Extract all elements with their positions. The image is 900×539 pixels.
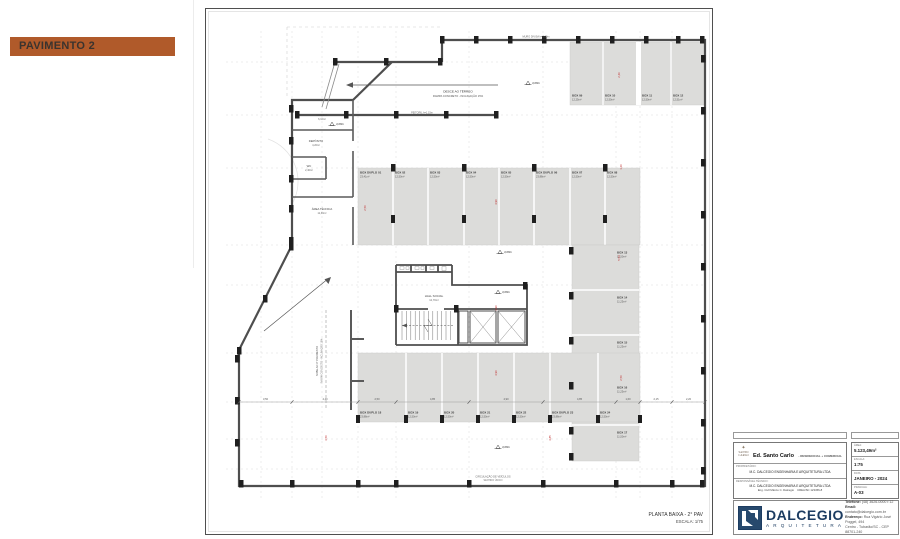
column bbox=[384, 58, 389, 66]
dimension-value: 4,85 bbox=[577, 397, 583, 401]
room-name: DEPÓSITO bbox=[309, 138, 324, 143]
ramp-note-line2: RAMPA CONCRETO - INCLINAÇÃO 15% bbox=[433, 93, 484, 98]
column bbox=[356, 480, 361, 488]
dimension-value: 4,90 bbox=[503, 397, 509, 401]
area-label: ÁREA: bbox=[854, 444, 896, 447]
column bbox=[700, 480, 705, 488]
column bbox=[670, 480, 675, 488]
parking-stall-name: BOX DUPLO 01 bbox=[360, 171, 382, 175]
column bbox=[237, 347, 242, 355]
parking-stall-area: 12,50m² bbox=[430, 174, 440, 178]
phone-label: Telefone: bbox=[845, 500, 861, 504]
parking-stall-name: BOX DUPLO 06 bbox=[536, 171, 558, 175]
column bbox=[239, 480, 244, 488]
red-dimension: 4,85 bbox=[548, 435, 552, 441]
column bbox=[235, 439, 240, 447]
parking-stall-area: 12,50m² bbox=[572, 174, 582, 178]
floor-label-banner: PAVIMENTO 2 bbox=[10, 37, 175, 56]
responsible-crea: CREA/SC 123456-8 bbox=[797, 488, 822, 492]
column bbox=[444, 111, 449, 119]
area-value: 5.123,49m² bbox=[854, 448, 896, 453]
column bbox=[603, 215, 607, 223]
column bbox=[440, 36, 445, 44]
parking-stall-name: BOX 14 bbox=[617, 296, 628, 300]
red-dimension: 1,20 bbox=[619, 164, 623, 170]
room-area: 11,30m² bbox=[318, 212, 327, 215]
column bbox=[235, 397, 240, 405]
column bbox=[701, 419, 706, 427]
column bbox=[701, 211, 706, 219]
dimension-value: 2,20 bbox=[686, 397, 692, 401]
wc-fixtures bbox=[400, 267, 446, 271]
column bbox=[394, 480, 399, 488]
column bbox=[391, 215, 395, 223]
column bbox=[474, 36, 479, 44]
dimension-value: 2,50 bbox=[374, 397, 380, 401]
stairs bbox=[402, 311, 454, 340]
parking-stall-area: 12,50m² bbox=[466, 174, 476, 178]
floor-plan-drawing: BOX DUPLO 0123,41m²BOX 0212,50m²BOX 0312… bbox=[206, 9, 712, 534]
area-cell: ÁREA: 5.123,49m² bbox=[852, 443, 898, 457]
column bbox=[541, 480, 546, 488]
level-marker-icon bbox=[496, 445, 500, 449]
parking-stall-area: 12,50m² bbox=[605, 97, 615, 101]
column bbox=[290, 480, 295, 488]
column bbox=[701, 107, 706, 115]
email-label: Email: bbox=[845, 505, 856, 509]
parking-stall-name: BOX 24 bbox=[600, 411, 611, 415]
parking-stall-name: BOX 08 bbox=[607, 171, 618, 175]
aisle-note-line2: SENTIDO ÚNICO bbox=[484, 479, 503, 482]
parking-stall-area: 23,41m² bbox=[360, 174, 370, 178]
column bbox=[700, 36, 705, 44]
column bbox=[701, 263, 706, 271]
column bbox=[508, 36, 513, 44]
column bbox=[569, 427, 574, 435]
sheet-number-value: A-03 bbox=[854, 490, 896, 495]
parking-stall-area: 11,50m² bbox=[617, 434, 626, 438]
sheet-number-label: PRANCHA: bbox=[854, 486, 896, 489]
parking-stall-area: 12,50m² bbox=[600, 414, 610, 418]
dalcegio-logo-icon bbox=[738, 506, 762, 530]
column bbox=[569, 337, 574, 345]
title-block-strip-left bbox=[733, 432, 847, 439]
drawing-sheet: BOX DUPLO 0123,41m²BOX 0212,50m²BOX 0312… bbox=[205, 8, 713, 535]
south-ramp-note-line2: RAMPA CONCRETO - INCLINAÇÃO 15% bbox=[321, 338, 324, 384]
sheet-number-cell: PRANCHA: A-03 bbox=[852, 485, 898, 498]
owner-label: PROPRIETÁRIO: bbox=[736, 465, 756, 468]
scale-cell: ESCALA: 1:75 bbox=[852, 457, 898, 471]
parking-stall-name: BOX DUPLO 18 bbox=[360, 411, 382, 415]
level-marker-icon bbox=[526, 81, 530, 85]
level-marker-icon bbox=[498, 250, 502, 254]
parking-stall-name: BOX 05 bbox=[501, 171, 512, 175]
parking-stall-name: BOX 04 bbox=[466, 171, 477, 175]
parking-stall-area: 23,88m² bbox=[536, 174, 546, 178]
column bbox=[235, 355, 240, 363]
responsible-row: RESPONSÁVEL TÉCNICO: M.C. DALCEGIO ENGEN… bbox=[734, 479, 846, 498]
column bbox=[295, 111, 300, 119]
parking-stall-area: 12,51m² bbox=[673, 97, 683, 101]
level-value: 3,08m bbox=[336, 122, 345, 126]
column bbox=[569, 382, 574, 390]
santo-carlo-crest: ✦ SANTO CARLO bbox=[736, 444, 751, 458]
date-label: DATA: bbox=[854, 472, 896, 475]
responsible-label: RESPONSÁVEL TÉCNICO: bbox=[736, 480, 768, 483]
column bbox=[569, 292, 574, 300]
room-area: 2,40m² bbox=[305, 169, 313, 172]
architect-name: DALCEGIO bbox=[766, 508, 845, 522]
architect-contacts: Telefone: (48) 3626-0000 r.12 Email: con… bbox=[845, 500, 894, 535]
hall-label: HALL SOCIAL bbox=[425, 294, 444, 298]
owner-value: M.C. DALCEGIO ENGENHARIA E ARQUITETURA L… bbox=[734, 470, 846, 474]
column bbox=[576, 36, 581, 44]
dimension-value: 4,40 bbox=[322, 397, 328, 401]
column bbox=[638, 415, 642, 423]
ramp-edge-lines bbox=[322, 62, 339, 109]
column bbox=[532, 215, 536, 223]
date-value: JANEIRO - 2024 bbox=[854, 476, 896, 481]
layout-guide-line bbox=[193, 0, 194, 268]
parking-stall-name: BOX 15 bbox=[617, 341, 628, 345]
project-title: Ed. Santo Carlo bbox=[753, 453, 794, 459]
column bbox=[494, 111, 499, 119]
parking-stall-area: 12,50m² bbox=[516, 414, 526, 418]
level-marker-icon bbox=[330, 122, 334, 126]
column bbox=[569, 453, 574, 461]
aisle-note-line1: CIRCULAÇÃO DE VEÍCULOS bbox=[475, 474, 510, 479]
parking-stall-name: BOX 16 bbox=[617, 386, 628, 390]
room-area: 4,20m² bbox=[312, 144, 320, 147]
parking-stall-area: 12,50m² bbox=[480, 414, 490, 418]
parking-stall-name: BOX 17 bbox=[617, 431, 628, 435]
parking-stall-name: BOX 19 bbox=[408, 411, 419, 415]
stair-break-line bbox=[424, 319, 432, 332]
parking-stall-area: 23,88m² bbox=[552, 414, 562, 418]
stall-gap bbox=[636, 42, 641, 105]
column bbox=[289, 137, 294, 145]
parking-stall-name: BOX 07 bbox=[572, 171, 583, 175]
level-value: 3,08m bbox=[532, 81, 541, 85]
email-value: contato@dalcegio.com.br bbox=[845, 510, 886, 514]
parking-stall-area: 12,50m² bbox=[607, 174, 617, 178]
red-dimension: 4,90 bbox=[494, 199, 498, 205]
red-dimension: 3,50 bbox=[324, 435, 328, 441]
red-dimension: 2,46 bbox=[617, 72, 621, 78]
dimension-value: 3,50 bbox=[263, 397, 269, 401]
dimension-value: 1,60 bbox=[625, 397, 631, 401]
stair-arrow bbox=[402, 324, 407, 328]
column bbox=[701, 467, 706, 475]
parking-stall-area: 11,25m² bbox=[617, 344, 626, 348]
room-area: 6,10m² bbox=[318, 118, 326, 121]
date-cell: DATA: JANEIRO - 2024 bbox=[852, 471, 898, 485]
parking-stall-area: 12,25m² bbox=[572, 97, 582, 101]
column bbox=[610, 36, 615, 44]
architect-logo-block: DALCEGIO ARQUITETURA Telefone: (48) 3626… bbox=[733, 500, 899, 535]
red-dimension: 4,90 bbox=[494, 370, 498, 376]
column bbox=[454, 305, 459, 313]
room-name: LIXEIRA bbox=[317, 113, 328, 117]
phone-value: (48) 3626-0000 r.12 bbox=[862, 500, 894, 504]
parking-stall-area: 12,50m² bbox=[501, 174, 511, 178]
column bbox=[289, 205, 294, 213]
parking-stall-name: BOX 22 bbox=[516, 411, 527, 415]
parking-stall-name: BOX 21 bbox=[480, 411, 491, 415]
column bbox=[523, 282, 528, 290]
parking-stall-area: 12,50m² bbox=[444, 414, 454, 418]
column bbox=[289, 237, 294, 245]
plan-scale: ESCALA: 1/75 bbox=[676, 519, 704, 524]
column bbox=[644, 36, 649, 44]
parking-stall-area: 11,25m² bbox=[617, 389, 626, 393]
wall-note: MURO DIVISA h=2,00m bbox=[523, 36, 550, 39]
room-name: WC bbox=[307, 164, 312, 168]
scale-value: 1:75 bbox=[854, 462, 896, 467]
address-value2: Centro - Tubarão/SC - CEP 88701-240 bbox=[845, 525, 889, 534]
title-block-info-column: ÁREA: 5.123,49m² ESCALA: 1:75 DATA: JANE… bbox=[851, 442, 899, 499]
parking-stall-area: 23,88m² bbox=[360, 414, 370, 418]
parking-stall-area: 12,50m² bbox=[395, 174, 405, 178]
column bbox=[701, 315, 706, 323]
hall-area: 12,70m² bbox=[429, 298, 439, 302]
column bbox=[394, 305, 399, 313]
column bbox=[701, 159, 706, 167]
column bbox=[344, 111, 349, 119]
project-header: ✦ SANTO CARLO Ed. Santo Carlo - RESIDENC… bbox=[734, 443, 846, 464]
architect-subtitle: ARQUITETURA bbox=[766, 523, 845, 528]
level-marker-icon bbox=[496, 290, 500, 294]
parking-stall-name: BOX 12 bbox=[673, 94, 684, 98]
red-dimension: 4,90 bbox=[494, 305, 498, 311]
parking-stall-name: BOX 02 bbox=[395, 171, 406, 175]
parking-stall-area: 11,25m² bbox=[617, 299, 626, 303]
parking-stall-name: BOX 13 bbox=[617, 251, 628, 255]
south-ramp-note-line1: SOBE AO 3° PAVIMENTO bbox=[315, 346, 319, 376]
column bbox=[438, 58, 443, 66]
project-title-suffix: - RESIDENCIAL + COMERCIAL bbox=[798, 454, 842, 458]
scale-label: ESCALA: bbox=[854, 458, 896, 461]
column bbox=[701, 55, 706, 63]
room-name: ÁREA TÉCNICA bbox=[312, 206, 333, 211]
ramp-arrow-top bbox=[346, 82, 498, 88]
column bbox=[676, 36, 681, 44]
parking-stall-name: BOX 09 bbox=[572, 94, 583, 98]
column bbox=[289, 175, 294, 183]
level-value: 3,08m bbox=[502, 290, 511, 294]
ramp-note-line1: DESCE AO TÉRREO bbox=[443, 89, 473, 94]
column bbox=[701, 367, 706, 375]
plan-title: PLANTA BAIXA - 2° PAV bbox=[648, 512, 703, 518]
level-value: 3,08m bbox=[502, 445, 511, 449]
parking-stall-area: 12,50m² bbox=[408, 414, 418, 418]
title-block-strip-right bbox=[851, 432, 899, 439]
parking-stall-name: BOX 11 bbox=[642, 94, 653, 98]
owner-row: PROPRIETÁRIO: M.C. DALCEGIO ENGENHARIA E… bbox=[734, 464, 846, 479]
crest-line2: CARLO bbox=[736, 454, 751, 457]
column bbox=[289, 105, 294, 113]
address-label: Endereço: bbox=[845, 515, 863, 519]
level-value: 3,08m bbox=[504, 250, 513, 254]
red-dimension: 5,54 bbox=[617, 255, 621, 261]
floor-label: PAVIMENTO 2 bbox=[19, 40, 95, 52]
column bbox=[333, 58, 338, 66]
dimension-value: 4,85 bbox=[430, 397, 436, 401]
parking-stall-name: BOX DUPLO 23 bbox=[552, 411, 574, 415]
column bbox=[462, 215, 466, 223]
column bbox=[467, 480, 472, 488]
column bbox=[569, 247, 574, 255]
parking-stall-name: BOX 10 bbox=[605, 94, 616, 98]
dimension-value: 2,15 bbox=[653, 397, 659, 401]
parking-stall-name: BOX 03 bbox=[430, 171, 441, 175]
red-dimension: 2,50 bbox=[619, 375, 623, 381]
red-dimension: 2,50 bbox=[363, 205, 367, 211]
parking-stall-name: BOX 20 bbox=[444, 411, 455, 415]
turning-radius-arc bbox=[268, 139, 298, 204]
title-block: ✦ SANTO CARLO Ed. Santo Carlo - RESIDENC… bbox=[733, 432, 899, 499]
parking-stall-area: 12,50m² bbox=[642, 97, 652, 101]
responsible-engineer: Eng. Civil Márcio C. Dalcegio bbox=[758, 488, 794, 492]
parapet-note: PEITORIL h=1,15m bbox=[411, 111, 433, 114]
core-walls bbox=[396, 265, 527, 345]
column bbox=[614, 480, 619, 488]
title-block-main: ✦ SANTO CARLO Ed. Santo Carlo - RESIDENC… bbox=[733, 442, 847, 499]
column bbox=[394, 111, 399, 119]
column bbox=[263, 295, 268, 303]
